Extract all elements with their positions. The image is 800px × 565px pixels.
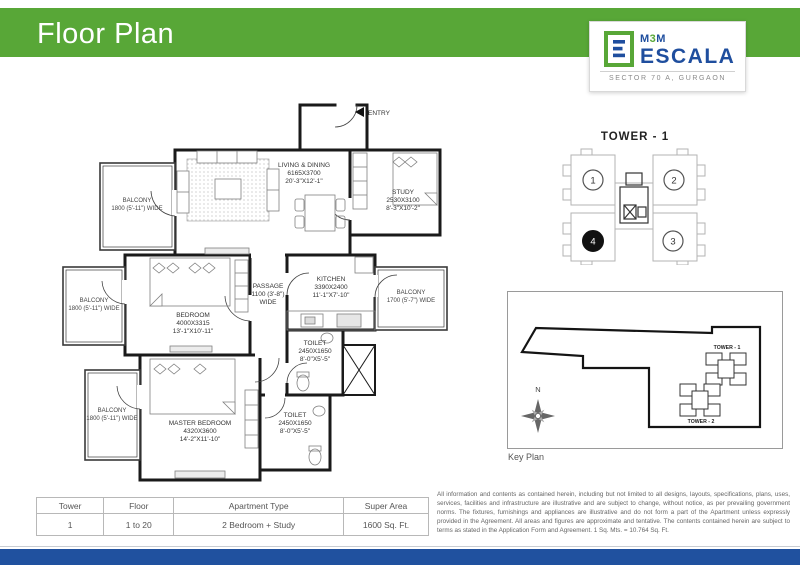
disclaimer-text: All information and contents as containe… — [437, 491, 790, 536]
unit-1-label: 1 — [590, 176, 595, 187]
toilet1-ft: 8'-0"X5'-5" — [300, 356, 331, 363]
master-ft: 14'-2"X11'-10" — [180, 436, 221, 443]
balcony-bl-size: 1800 (5'-11") WIDE — [86, 416, 137, 422]
balcony-r-size: 1700 (5'-7") WIDE — [387, 298, 435, 304]
keyplan-tower2-label: TOWER - 2 — [688, 419, 715, 425]
unit-3-label: 3 — [670, 237, 675, 248]
balcony-ml-size: 1800 (5'-11") WIDE — [68, 306, 119, 312]
tower-title: TOWER - 1 — [553, 131, 717, 143]
balcony-tl-size: 1800 (5'-11") WIDE — [111, 206, 162, 212]
spec-table-header-row: Tower Floor Apartment Type Super Area — [37, 498, 429, 514]
balcony-ml-name: BALCONY — [80, 298, 109, 304]
kitchen-name: KITCHEN — [317, 276, 346, 283]
key-plan-svg: TOWER - 1 TOWER - 2 N — [508, 292, 782, 448]
service-shaft — [343, 345, 375, 395]
study-mm: 2530X3100 — [386, 197, 420, 204]
passage-size2: WIDE — [260, 299, 278, 306]
tower-core — [620, 173, 648, 223]
spec-table: Tower Floor Apartment Type Super Area 1 … — [36, 497, 429, 536]
cell-floor: 1 to 20 — [104, 514, 174, 536]
header-tower: Tower — [37, 498, 104, 514]
master-mm: 4320X3600 — [183, 428, 217, 435]
study-ft: 8'-3"X10'-2" — [386, 205, 421, 212]
page-title: Floor Plan — [37, 18, 174, 51]
toilet2-ft: 8'-0"X5'-5" — [280, 428, 311, 435]
floor-plan: ENTRY LIVING & DINING 6165X3700 20'-3"X1… — [55, 95, 455, 495]
keyplan-tower1-footprint — [706, 353, 746, 385]
bedroom-ft: 13'-1"X10'-11" — [173, 328, 214, 335]
toilet2-name: TOILET — [284, 412, 307, 419]
header-apartment-type: Apartment Type — [174, 498, 344, 514]
study-name: STUDY — [392, 189, 415, 196]
floor-plan-svg: ENTRY LIVING & DINING 6165X3700 20'-3"X1… — [55, 95, 455, 495]
unit-2-label: 2 — [671, 176, 676, 187]
master-name: MASTER BEDROOM — [169, 420, 231, 427]
keyplan-tower2-footprint — [680, 384, 720, 416]
toilet2-mm: 2450X1650 — [278, 420, 312, 427]
brand-m3m: M3M — [640, 34, 735, 45]
bedroom-mm: 4000X3315 — [176, 320, 210, 327]
keyplan-tower1-label: TOWER - 1 — [714, 345, 741, 351]
spec-table-data-row: 1 1 to 20 2 Bedroom + Study 1600 Sq. Ft. — [37, 514, 429, 536]
unit-circles: 1 2 3 4 — [583, 170, 685, 252]
cell-apartment-type: 2 Bedroom + Study — [174, 514, 344, 536]
balcony-bl-name: BALCONY — [98, 408, 127, 414]
cell-super-area: 1600 Sq. Ft. — [344, 514, 429, 536]
living-mm: 6165X3700 — [287, 170, 321, 177]
balcony-r-name: BALCONY — [397, 290, 426, 296]
tower-diagram: TOWER - 1 1 2 3 — [553, 131, 717, 270]
brand-escala: ESCALA — [640, 46, 735, 67]
balcony-tl-name: BALCONY — [123, 198, 152, 204]
cell-tower: 1 — [37, 514, 104, 536]
logo-card: M3M ESCALA SECTOR 70 A, GURGAON — [589, 21, 746, 92]
entry-label: ENTRY — [368, 110, 391, 117]
bedroom-name: BEDROOM — [176, 312, 210, 319]
passage-name: PASSAGE — [253, 283, 284, 290]
living-ft: 20'-3"X12'-1" — [285, 178, 323, 185]
toilet1-mm: 2450X1650 — [298, 348, 332, 355]
header-super-area: Super Area — [344, 498, 429, 514]
passage-size: 1100 (3'-8") — [251, 291, 284, 298]
footer-hairline — [0, 546, 800, 547]
logo-divider — [600, 71, 735, 72]
unit-4-label: 4 — [590, 237, 595, 248]
logo-tagline: SECTOR 70 A, GURGAON — [590, 75, 745, 82]
north-label: N — [535, 385, 540, 394]
key-plan-box: TOWER - 1 TOWER - 2 N — [507, 291, 783, 449]
key-plan-caption: Key Plan — [508, 452, 544, 462]
header-floor: Floor — [104, 498, 174, 514]
living-name: LIVING & DINING — [278, 162, 330, 169]
tower-diagram-svg: 1 2 3 4 — [553, 147, 717, 265]
kitchen-mm: 3390X2400 — [314, 284, 348, 291]
compass-icon — [521, 399, 555, 433]
footer-bar — [0, 549, 800, 565]
kitchen-ft: 11'-1"X7'-10" — [313, 292, 351, 299]
m3m-escala-logo-icon — [604, 31, 634, 67]
toilet1-name: TOILET — [304, 340, 327, 347]
